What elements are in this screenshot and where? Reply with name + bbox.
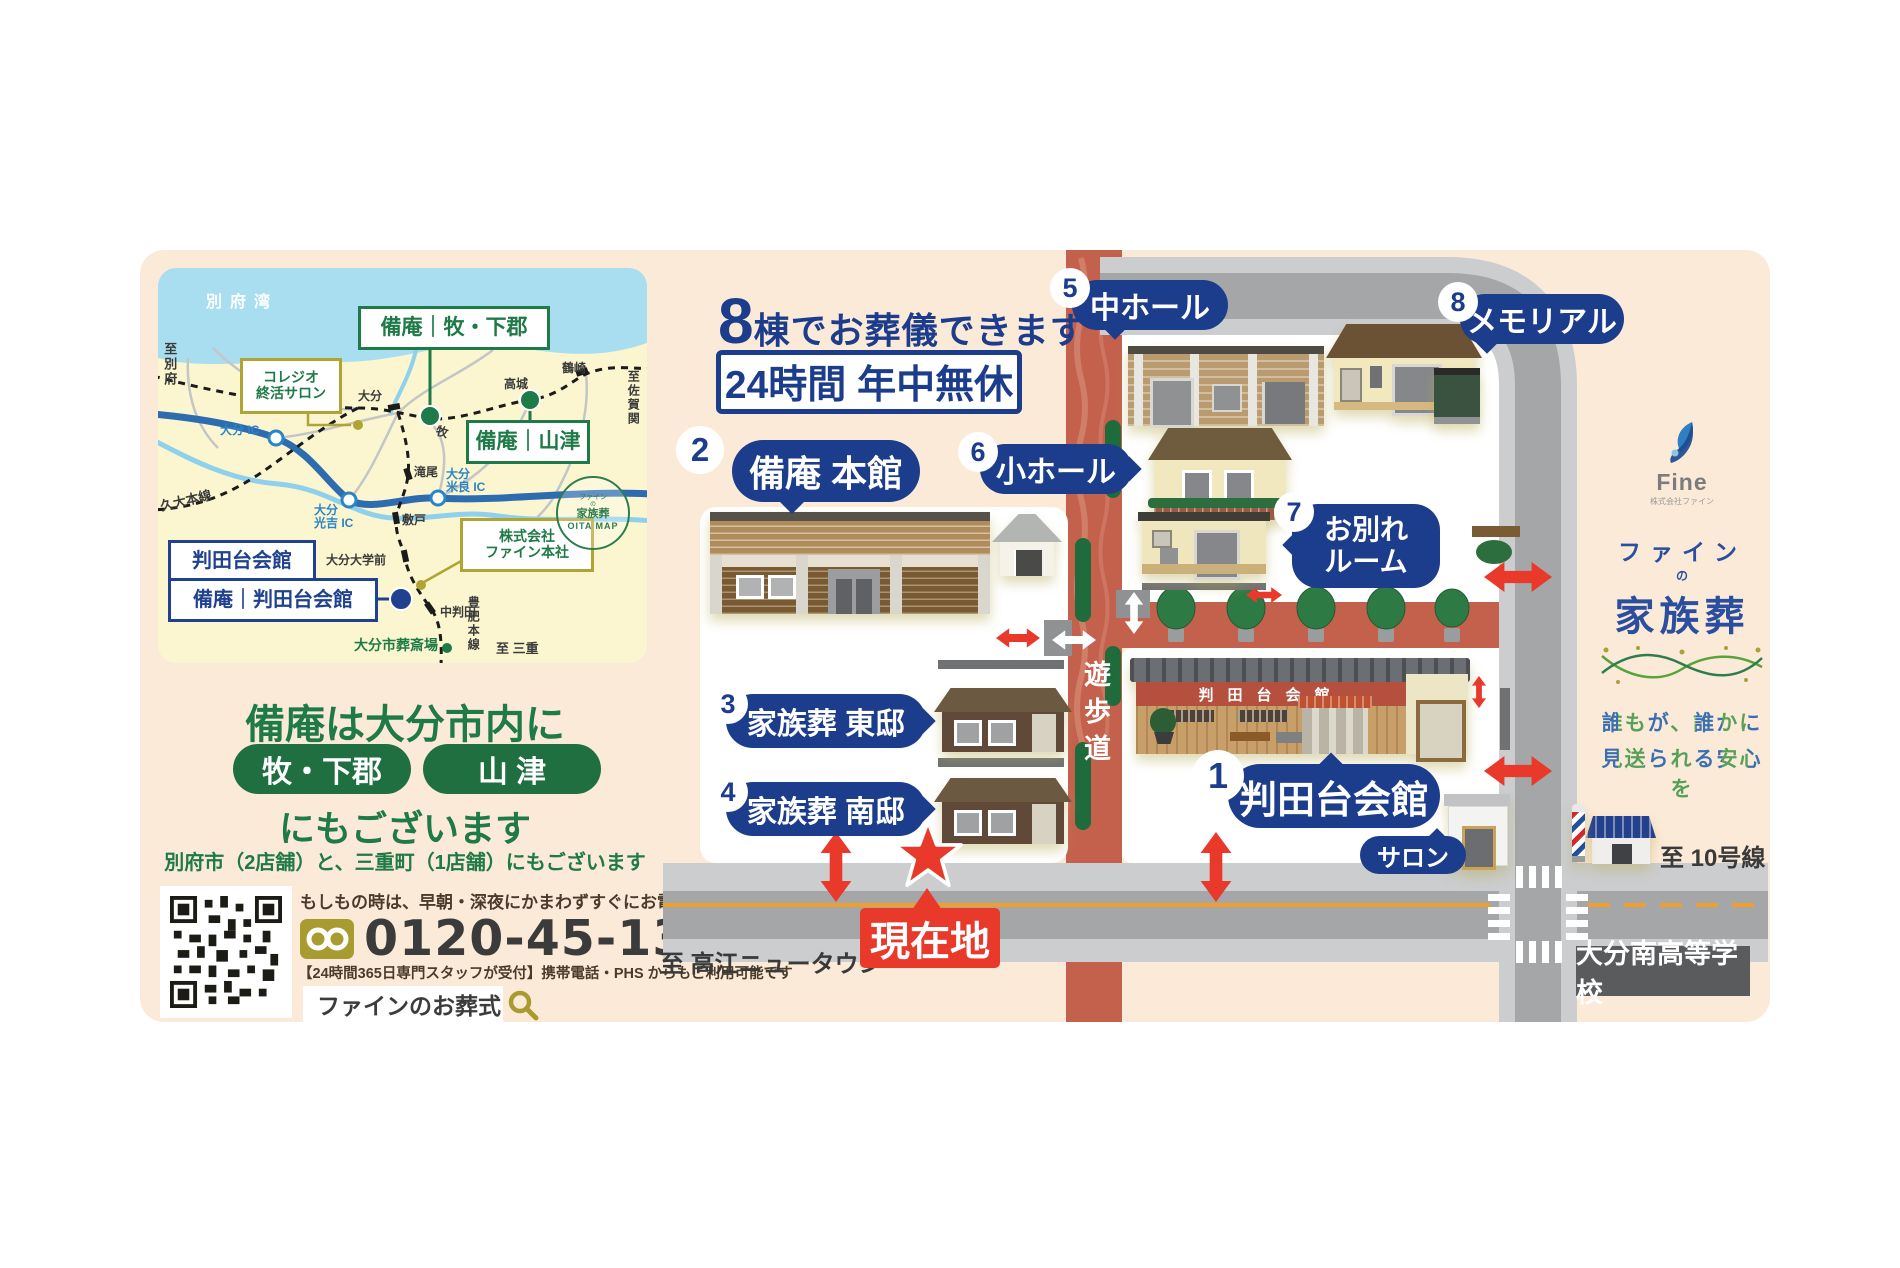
bubble-kohall: 小ホール [980,444,1132,494]
handadai-box: 判田台会館 [168,540,316,582]
bubble-higashitei-label: 家族葬 東邸 [747,699,905,743]
building-owakare-room [1138,512,1270,582]
bubble-memorial-label: メモリアル [1467,297,1617,341]
station-shikido: 敷戸 [402,514,426,527]
brand-block: Fine 株式会社ファイン ファイン の 家族葬 誰もが、誰かに 見送られる安心… [1592,420,1772,803]
hq-dot [416,580,426,590]
badge-text: OITA MAP [568,522,619,532]
bubble-kohall-label: 小ホール [996,447,1116,491]
station-daigakumae: 大分大学前 [326,554,386,567]
to-beppu-label: 至別府 [162,342,176,387]
badge-3: 3 [708,684,748,724]
oita-mini-map: 別府湾 至別府 至佐賀関 大分 牧 高城 鶴崎 滝尾 敷戸 大分大学前 中判田 … [158,268,647,663]
hohi-line-label: 豊肥本線 [466,596,479,652]
school-label: 大分南高等学校 [1576,946,1750,996]
fine-logo-subtext: 株式会社ファイン [1592,496,1772,507]
station-tsurusaki: 鶴崎 [562,362,586,375]
to-saganoseki-label: 至佐賀関 [626,370,639,426]
qr-code [160,886,292,1018]
bubble-minamitei: 家族葬 南邸 [726,782,926,836]
search-box: ファインのお葬式 [303,986,503,1022]
bian-handadai-box: 備庵｜判田台会館 [168,578,378,622]
tagline-line2: 見送られる安心を [1592,743,1772,803]
headline-text: 棟でお葬儀できます [754,302,1087,354]
badge-2: 2 [676,426,724,474]
bubble-minamitei-label: 家族葬 南邸 [747,787,905,831]
to-route10-label: 至 10号線 [1660,838,1765,873]
current-location-label: 現在地 [860,908,1000,968]
access-map-poster: 別府湾 至別府 至佐賀関 大分 牧 高城 鶴崎 滝尾 敷戸 大分大学前 中判田 … [0,0,1900,1268]
bian-maki-box: 備庵｜牧・下郡 [358,306,550,350]
badge-1: 1 [1192,750,1244,802]
building-barber [1586,816,1656,864]
building-hut [992,514,1062,576]
left-headline-2: にもございます [160,800,650,852]
left-headline-1: 備庵は大分市内に [160,692,650,750]
fine-hq-line1: 株式会社 [485,529,569,545]
current-location-pointer [912,888,942,910]
bubble-honkan: 備庵 本館 [732,440,920,502]
bian-yamazu-box: 備庵｜山津 [466,420,590,464]
bubble-handadai: 判田台会館 [1228,764,1440,828]
badge-8: 8 [1438,282,1478,322]
bubble-nakahall-label: 中ホール [1090,283,1210,327]
collegio-line1: コレジオ [256,370,326,386]
station-takajo: 高城 [504,378,528,391]
freedial-icon [300,919,354,959]
main-headline: 8 棟でお葬儀できます [718,284,1087,358]
logo-wave-graphic [1594,642,1770,688]
to-mie-label: 至 三重 [496,642,539,656]
building-handadai-hall: 判田台会館 [1130,656,1510,756]
bubble-salon: サロン [1360,836,1466,874]
mitsuyoshi-ic-line2: 光吉 IC [314,517,353,530]
badge-logo-line3: 家族葬 [577,508,610,520]
to-takae-label: 至 高江ニュータウン [660,944,883,979]
bubble-nakahall: 中ホール [1072,280,1228,330]
crematory-dot [442,643,452,653]
collegio-line2: 終活サロン [256,386,326,402]
qr-pattern [170,896,282,1008]
hq-connector [424,560,463,582]
family-logo-line2: 家族葬 [1592,584,1772,642]
station-oita: 大分 [358,390,382,403]
left-note: 別府市（2店舗）と、三重町（1店舗）にもございます [150,846,660,875]
crematory-label: 大分市葬斎場 [354,638,438,653]
tagline-line1: 誰もが、誰かに [1592,707,1772,737]
pill-maki-shimogori: 牧・下郡 [233,744,411,794]
building-kohall [1148,428,1292,520]
sea-label: 別府湾 [206,294,278,312]
fine-logo-text: Fine [1592,469,1772,496]
badge-logo-line1: ファイン [579,494,607,502]
building-honkan [710,512,990,614]
oita-ic-label: 大分 IC [220,424,259,437]
search-text: ファインのお葬式 [317,987,501,1021]
bubble-handadai-label: 判田台会館 [1239,769,1429,824]
collegio-salon-box: コレジオ 終活サロン [240,358,342,414]
walkway-label: 遊歩道 [1076,660,1115,771]
memorial-sign-board [1434,368,1480,424]
badge-5: 5 [1050,268,1090,308]
bubble-owakare-line2: ルーム [1324,546,1407,578]
mera-ic-label: 大分 米良 IC [446,468,485,494]
bubble-owakare: お別れ ルーム [1292,504,1440,588]
family-logo-no: の [1592,567,1772,584]
bubble-memorial: メモリアル [1460,294,1624,344]
current-location-text: 現在地 [870,909,990,967]
bubble-salon-label: サロン [1377,838,1449,873]
fine-hq-line2: ファイン本社 [485,545,569,561]
handadai-dot [390,588,412,610]
pill-yamazu: 山 津 [423,744,601,794]
badge-7: 7 [1274,492,1314,532]
building-nakahall [1128,346,1324,426]
building-higashitei [934,688,1072,752]
oita-map-badge: ファイン の 家族葬 OITA MAP [556,476,630,550]
mera-ic-line2: 米良 IC [446,481,485,494]
yamazu-dot [520,390,540,410]
badge-6: 6 [958,432,998,472]
headline-number: 8 [718,284,754,358]
maki-dot [420,406,440,426]
search-icon [506,988,540,1022]
barber-pole [1572,804,1585,862]
fine-logo-icon [1662,420,1702,464]
bubble-higashitei: 家族葬 東邸 [726,694,926,748]
family-logo-line1: ファイン [1592,533,1772,567]
collegio-dot [353,420,363,430]
badge-4: 4 [708,772,748,812]
bubble-honkan-label: 備庵 本館 [749,445,903,497]
hours-badge: 24時間 年中無休 [716,350,1022,414]
bubble-owakare-line1: お別れ [1324,514,1408,546]
station-takio: 滝尾 [414,466,438,479]
mitsuyoshi-ic-label: 大分 光吉 IC [314,504,353,530]
